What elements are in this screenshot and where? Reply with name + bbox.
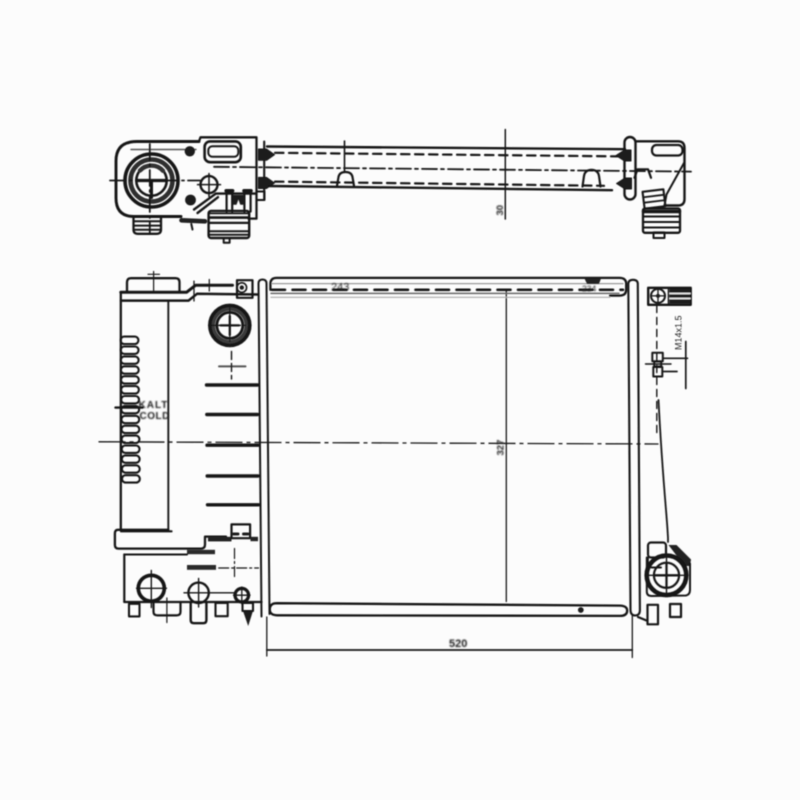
- svg-text:KALT: KALT: [139, 400, 169, 411]
- svg-text:M14x1.5: M14x1.5: [674, 315, 684, 350]
- svg-text:30: 30: [495, 205, 506, 216]
- svg-text:234: 234: [582, 284, 596, 294]
- svg-text:243: 243: [331, 282, 349, 294]
- svg-text:327: 327: [496, 440, 507, 456]
- svg-text:COLD: COLD: [140, 411, 170, 422]
- svg-text:520: 520: [449, 638, 467, 650]
